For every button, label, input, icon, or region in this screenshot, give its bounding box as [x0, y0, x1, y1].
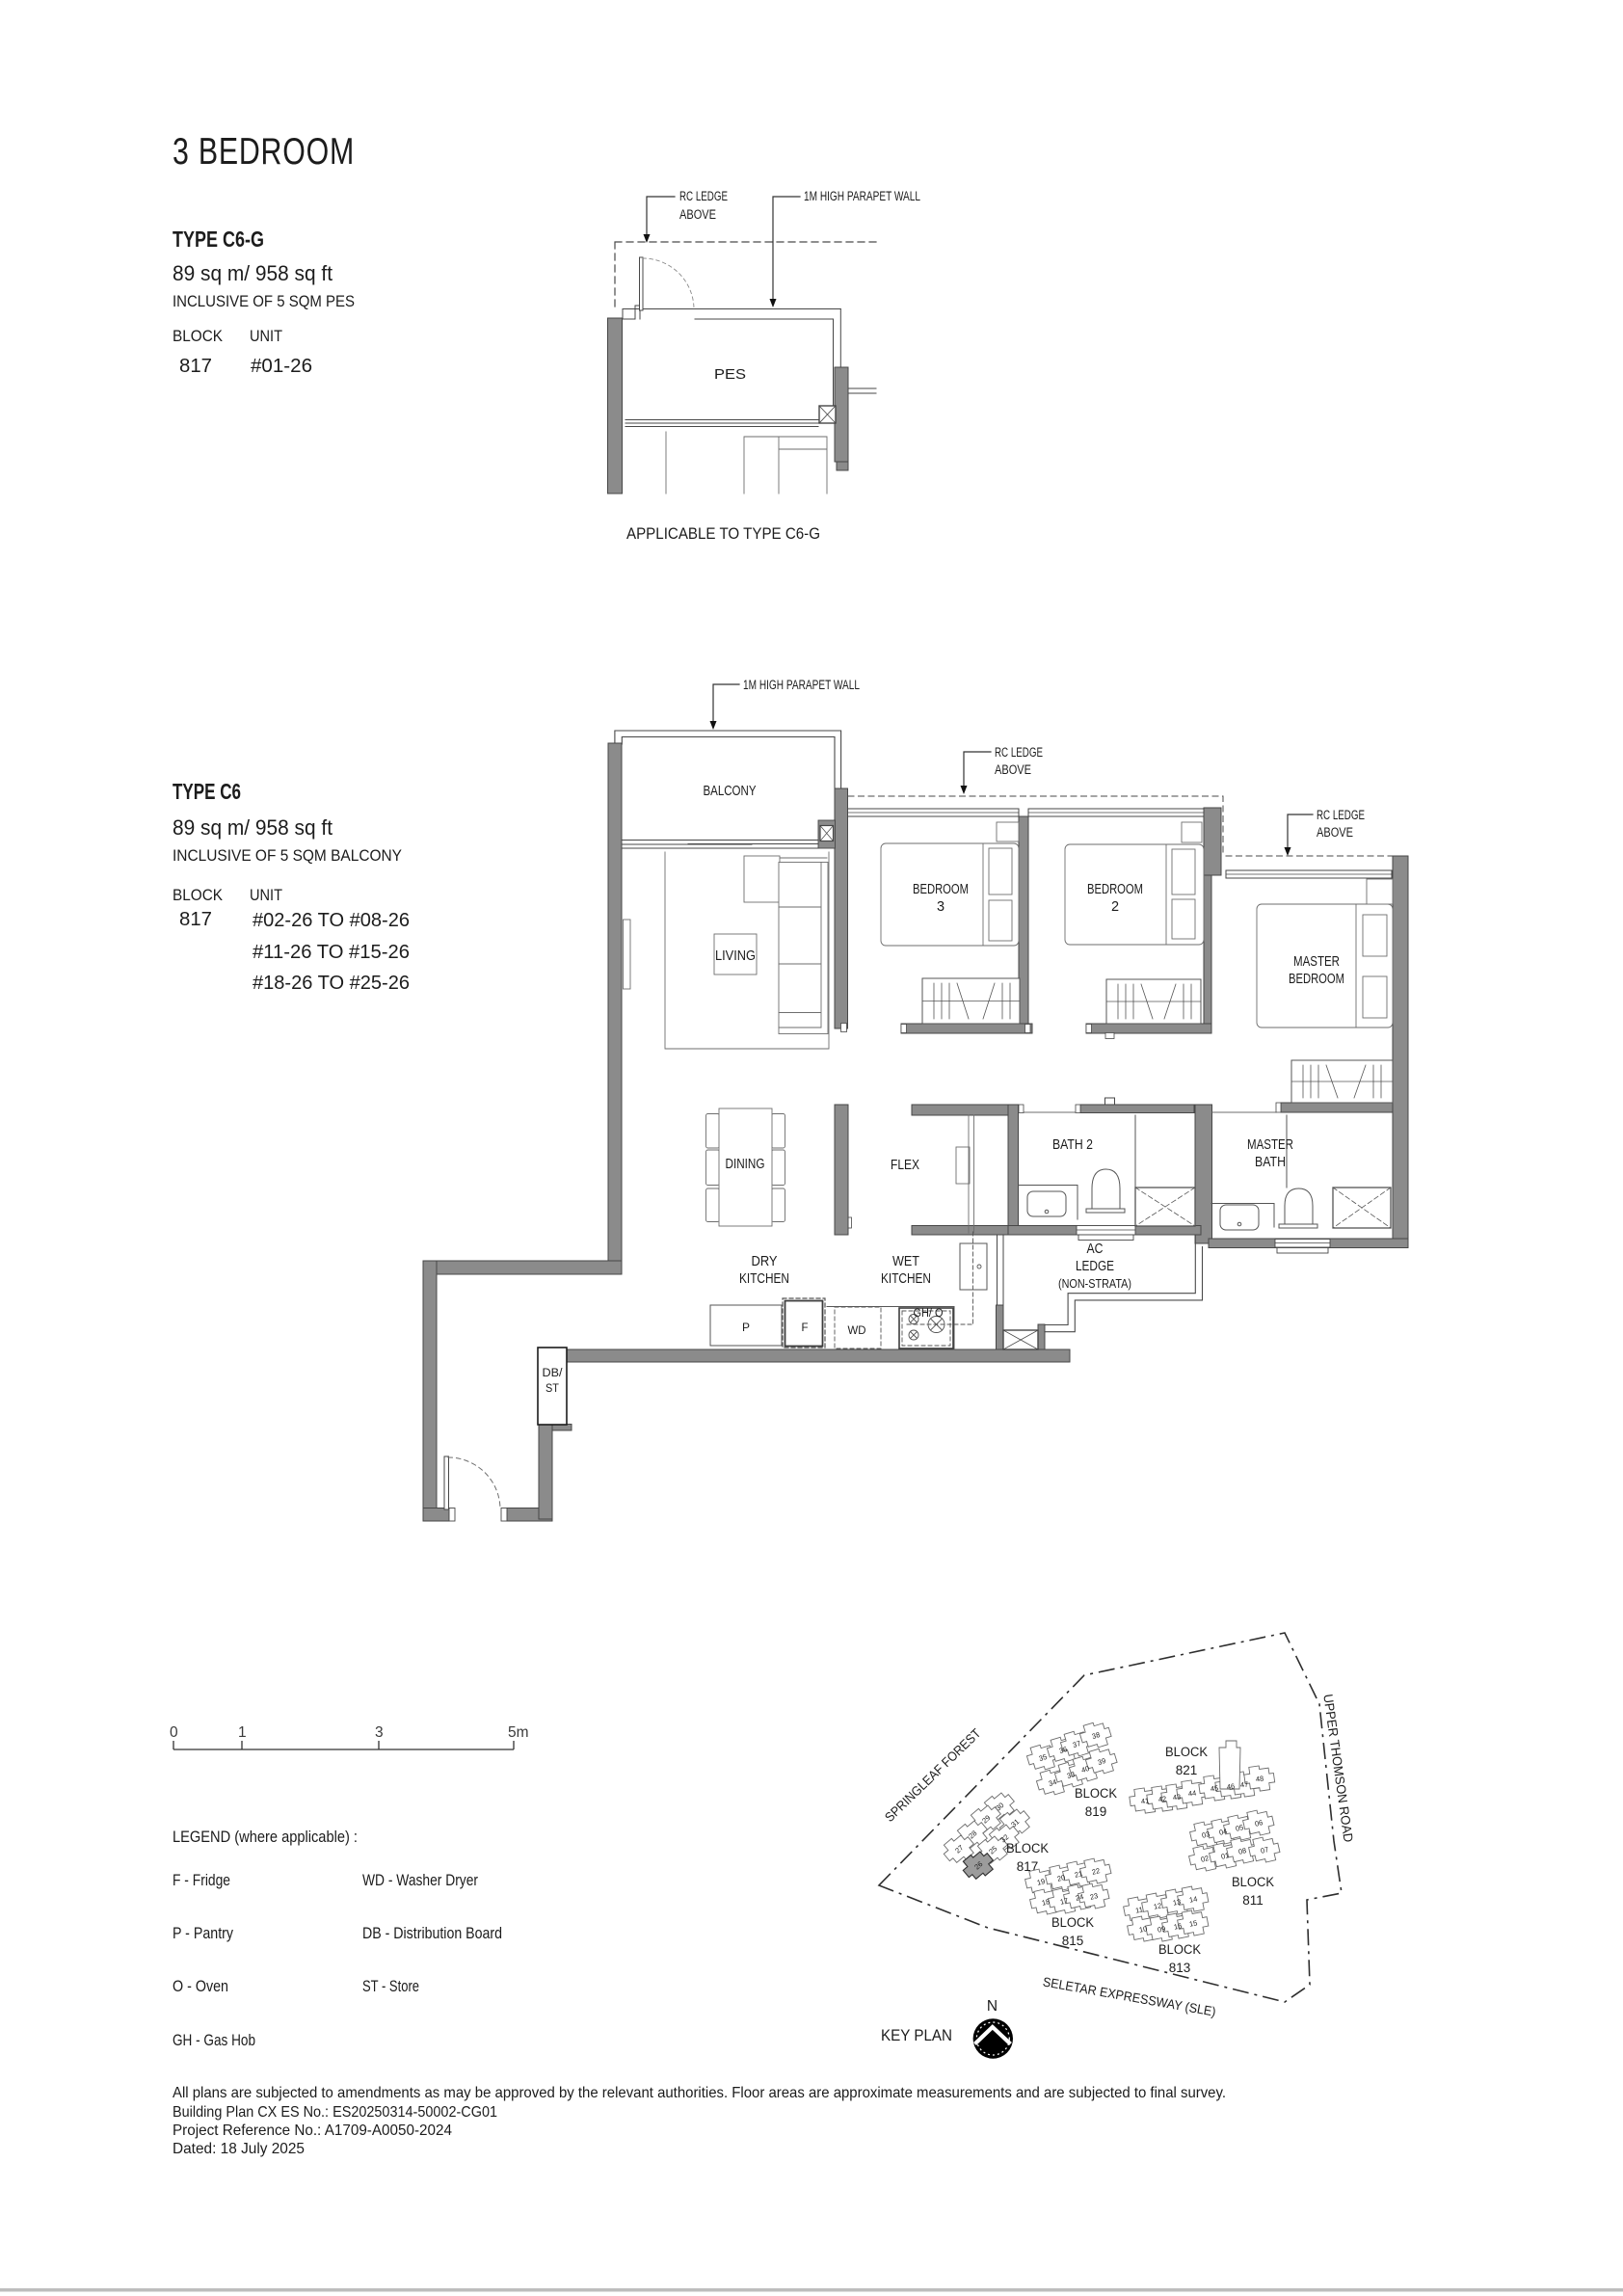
svg-text:TYPE C6: TYPE C6 — [173, 779, 241, 804]
svg-text:BLOCK: BLOCK — [1051, 1915, 1094, 1930]
svg-text:MASTER: MASTER — [1293, 954, 1340, 970]
svg-text:DB/: DB/ — [543, 1368, 564, 1379]
svg-text:All plans are subjected to ame: All plans are subjected to amendments as… — [173, 2085, 1226, 2101]
svg-text:KITCHEN: KITCHEN — [881, 1271, 931, 1287]
svg-text:5m: 5m — [508, 1724, 529, 1741]
svg-text:BLOCK: BLOCK — [173, 328, 223, 345]
svg-text:BATH 2: BATH 2 — [1052, 1137, 1093, 1153]
svg-text:RC LEDGE: RC LEDGE — [1317, 808, 1365, 822]
svg-text:815: 815 — [1062, 1934, 1084, 1948]
svg-text:44: 44 — [1187, 1788, 1197, 1798]
svg-text:N: N — [987, 1998, 998, 2015]
svg-text:817: 817 — [179, 356, 212, 377]
svg-text:89 sq m/ 958 sq ft: 89 sq m/ 958 sq ft — [173, 815, 333, 840]
svg-text:3: 3 — [937, 899, 945, 915]
svg-text:DRY: DRY — [752, 1254, 778, 1269]
svg-text:3: 3 — [375, 1724, 384, 1741]
svg-text:BLOCK: BLOCK — [1075, 1786, 1117, 1801]
svg-text:(NON-STRATA): (NON-STRATA) — [1058, 1277, 1131, 1291]
svg-text:F - Fridge: F - Fridge — [173, 1872, 230, 1889]
svg-text:ABOVE: ABOVE — [679, 207, 716, 222]
svg-text:RC LEDGE: RC LEDGE — [995, 745, 1043, 760]
svg-text:AC: AC — [1087, 1241, 1104, 1257]
svg-text:14: 14 — [1188, 1894, 1198, 1904]
svg-text:47: 47 — [1239, 1779, 1249, 1789]
svg-text:UNIT: UNIT — [250, 328, 282, 345]
svg-text:821: 821 — [1176, 1763, 1198, 1777]
svg-text:INCLUSIVE OF 5 SQM PES: INCLUSIVE OF 5 SQM PES — [173, 293, 355, 310]
svg-text:INCLUSIVE OF 5 SQM BALCONY: INCLUSIVE OF 5 SQM BALCONY — [173, 847, 402, 865]
svg-text:1: 1 — [238, 1724, 247, 1741]
svg-text:819: 819 — [1085, 1804, 1107, 1819]
svg-text:48: 48 — [1255, 1774, 1264, 1783]
svg-text:BLOCK: BLOCK — [1232, 1875, 1274, 1889]
svg-text:APPLICABLE TO TYPE C6-G: APPLICABLE TO TYPE C6-G — [626, 524, 820, 543]
svg-text:O - Oven: O - Oven — [173, 1978, 228, 1995]
svg-text:09: 09 — [1157, 1924, 1166, 1934]
svg-text:BATH: BATH — [1255, 1155, 1286, 1170]
svg-text:LEDGE: LEDGE — [1076, 1259, 1114, 1274]
svg-text:GH - Gas Hob: GH - Gas Hob — [173, 2032, 255, 2049]
svg-text:Project Reference No.: A1709-A: Project Reference No.: A1709-A0050-2024 — [173, 2122, 452, 2139]
svg-text:ST - Store: ST - Store — [362, 1978, 419, 1995]
svg-text:UNIT: UNIT — [250, 887, 282, 904]
svg-text:16: 16 — [1173, 1921, 1183, 1931]
svg-text:BEDROOM: BEDROOM — [913, 882, 969, 897]
svg-text:Building Plan CX ES No.: ES202: Building Plan CX ES No.: ES20250314-5000… — [173, 2104, 497, 2121]
svg-text:813: 813 — [1169, 1961, 1191, 1975]
svg-text:#11-26 TO #15-26: #11-26 TO #15-26 — [253, 942, 410, 963]
svg-text:FLEX: FLEX — [891, 1158, 919, 1173]
svg-text:P - Pantry: P - Pantry — [173, 1925, 234, 1942]
svg-text:#18-26 TO #25-26: #18-26 TO #25-26 — [253, 973, 410, 994]
svg-text:1M HIGH PARAPET WALL: 1M HIGH PARAPET WALL — [743, 678, 860, 692]
svg-text:89 sq m/ 958 sq ft: 89 sq m/ 958 sq ft — [173, 261, 333, 285]
svg-text:BLOCK: BLOCK — [173, 887, 223, 904]
svg-text:3 BEDROOM: 3 BEDROOM — [173, 131, 355, 173]
svg-text:WD: WD — [848, 1325, 866, 1337]
svg-text:12: 12 — [1153, 1901, 1162, 1910]
svg-text:WD - Washer Dryer: WD - Washer Dryer — [362, 1872, 478, 1889]
svg-text:Dated: 18 July 2025: Dated: 18 July 2025 — [173, 2141, 305, 2157]
svg-text:ABOVE: ABOVE — [995, 762, 1031, 777]
svg-text:WET: WET — [892, 1254, 919, 1269]
svg-text:RC LEDGE: RC LEDGE — [679, 189, 728, 203]
svg-text:0: 0 — [170, 1724, 178, 1741]
svg-text:LIVING: LIVING — [715, 948, 756, 964]
svg-text:13: 13 — [1172, 1897, 1182, 1907]
svg-text:811: 811 — [1242, 1893, 1264, 1908]
svg-text:P: P — [742, 1321, 750, 1334]
svg-text:41: 41 — [1140, 1796, 1150, 1805]
svg-text:#02-26 TO #08-26: #02-26 TO #08-26 — [253, 910, 410, 931]
svg-text:F: F — [802, 1321, 809, 1334]
svg-text:PES: PES — [714, 366, 746, 383]
svg-text:KEY PLAN: KEY PLAN — [881, 2026, 952, 2044]
svg-text:15: 15 — [1188, 1918, 1198, 1928]
svg-text:BLOCK: BLOCK — [1158, 1942, 1201, 1957]
svg-text:1M HIGH PARAPET WALL: 1M HIGH PARAPET WALL — [804, 189, 920, 203]
svg-text:DB - Distribution Board: DB - Distribution Board — [362, 1925, 502, 1942]
svg-text:MASTER: MASTER — [1247, 1137, 1293, 1153]
svg-text:KITCHEN: KITCHEN — [739, 1271, 789, 1287]
svg-text:43: 43 — [1172, 1792, 1182, 1802]
svg-text:42: 42 — [1157, 1794, 1167, 1803]
svg-text:46: 46 — [1226, 1781, 1236, 1791]
svg-text:BLOCK: BLOCK — [1006, 1841, 1049, 1855]
svg-text:BEDROOM: BEDROOM — [1289, 972, 1344, 987]
svg-text:10: 10 — [1138, 1924, 1148, 1934]
svg-text:DINING: DINING — [726, 1157, 765, 1172]
svg-text:TYPE C6-G: TYPE C6-G — [173, 227, 264, 252]
svg-text:GH/ O: GH/ O — [914, 1308, 944, 1320]
svg-text:#01-26: #01-26 — [251, 356, 312, 377]
svg-text:BLOCK: BLOCK — [1165, 1745, 1208, 1759]
svg-text:817: 817 — [179, 909, 212, 930]
svg-text:BALCONY: BALCONY — [704, 784, 757, 799]
svg-text:45: 45 — [1210, 1783, 1219, 1793]
svg-text:BEDROOM: BEDROOM — [1087, 882, 1143, 897]
svg-text:ST: ST — [545, 1383, 559, 1395]
svg-text:2: 2 — [1111, 899, 1119, 915]
svg-text:ABOVE: ABOVE — [1317, 825, 1353, 840]
svg-text:LEGEND (where applicable) :: LEGEND (where applicable) : — [173, 1829, 358, 1846]
